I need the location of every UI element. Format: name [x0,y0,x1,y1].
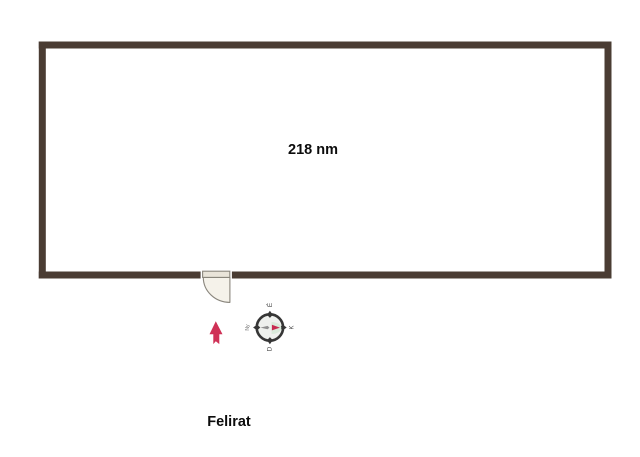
svg-text:Felirat: Felirat [207,414,251,430]
svg-text:É: É [265,302,274,307]
svg-text:D: D [267,346,274,351]
svg-text:Ny: Ny [245,324,251,331]
svg-text:K: K [290,325,296,329]
svg-text:218 nm: 218 nm [288,142,338,158]
